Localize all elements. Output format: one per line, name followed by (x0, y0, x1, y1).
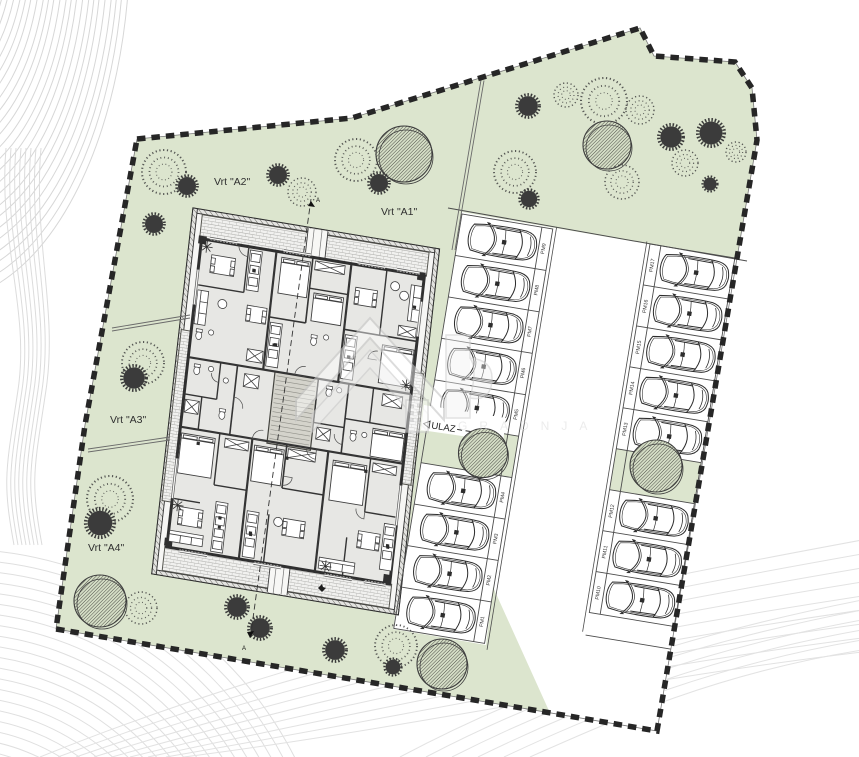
svg-text:Vrt "A1": Vrt "A1" (381, 206, 418, 218)
svg-text:Vrt "A3": Vrt "A3" (110, 414, 147, 426)
svg-text:Vrt "A2": Vrt "A2" (214, 176, 251, 188)
svg-text:A: A (242, 646, 246, 652)
svg-text:GRADNJA: GRADNJA (458, 419, 599, 433)
svg-text:Vrt "A4": Vrt "A4" (88, 542, 125, 554)
svg-text:A: A (316, 198, 320, 204)
